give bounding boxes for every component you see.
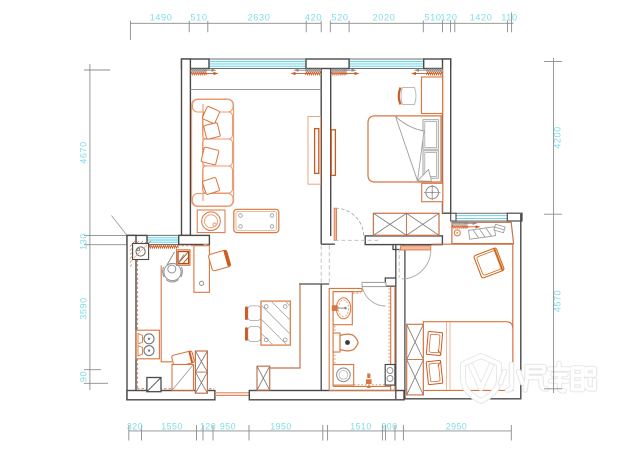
- svg-text:4670: 4670: [79, 141, 89, 163]
- svg-text:1510: 1510: [350, 422, 372, 432]
- svg-text:1550: 1550: [161, 422, 183, 432]
- svg-text:120: 120: [200, 422, 216, 432]
- svg-text:320: 320: [127, 422, 143, 432]
- svg-text:1490: 1490: [150, 13, 173, 23]
- svg-text:4200: 4200: [553, 126, 563, 148]
- svg-text:950: 950: [220, 422, 236, 432]
- svg-text:3590: 3590: [79, 297, 89, 319]
- svg-text:4570: 4570: [553, 290, 563, 312]
- svg-text:110: 110: [501, 13, 517, 23]
- svg-text:420: 420: [305, 13, 322, 23]
- svg-text:90: 90: [79, 371, 89, 382]
- svg-text:510: 510: [424, 13, 441, 23]
- svg-text:120: 120: [440, 13, 457, 23]
- svg-text:2950: 2950: [446, 422, 468, 432]
- svg-text:510: 510: [190, 13, 207, 23]
- svg-text:1950: 1950: [270, 422, 292, 432]
- svg-text:520: 520: [331, 13, 348, 23]
- svg-text:200: 200: [381, 422, 397, 432]
- svg-text:1420: 1420: [470, 13, 493, 23]
- svg-text:2630: 2630: [248, 13, 271, 23]
- svg-text:130: 130: [79, 233, 89, 250]
- svg-text:2020: 2020: [373, 13, 396, 23]
